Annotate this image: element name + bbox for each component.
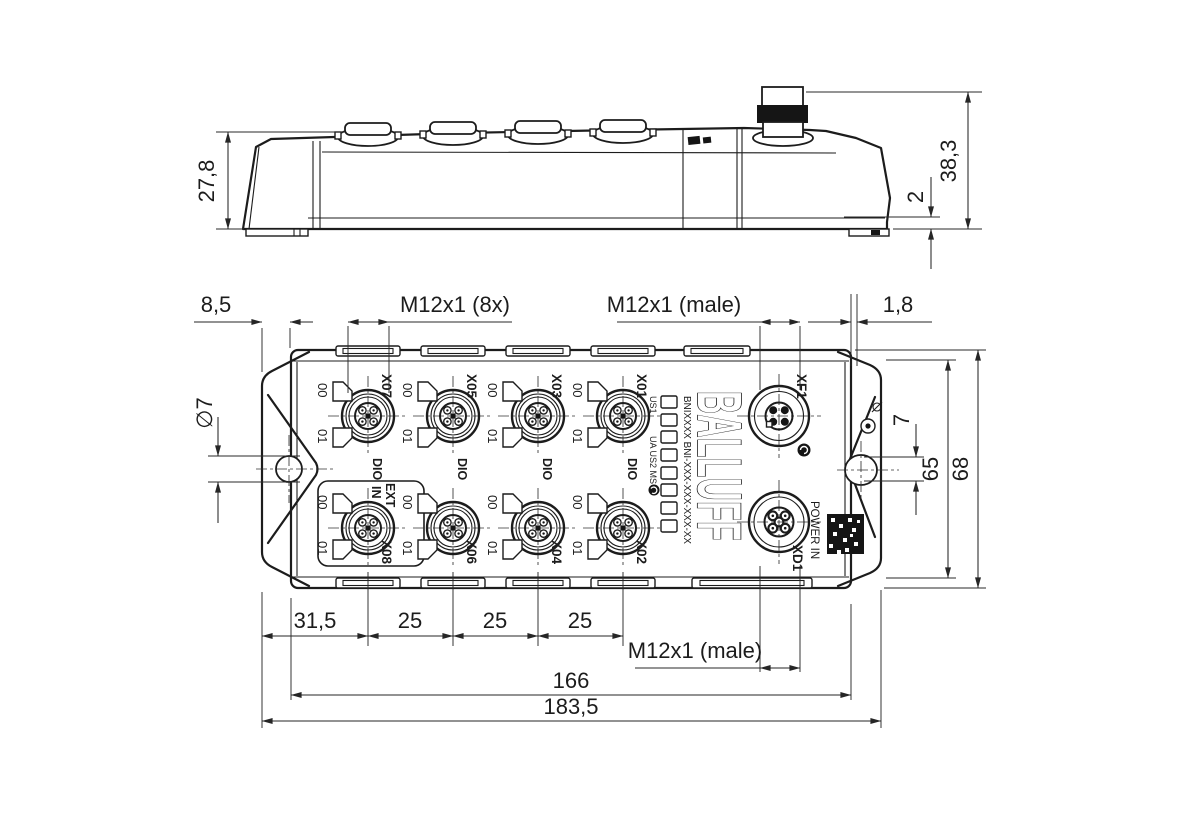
dim-ports-thread: M12x1 (8x) <box>348 292 512 393</box>
label-m12-male-top: M12x1 (male) <box>607 292 741 317</box>
port-label-x02: X02 <box>634 540 649 564</box>
led-00-label: 00 <box>400 495 415 509</box>
dim-text-166: 166 <box>553 668 590 693</box>
led-01-label: 01 <box>400 429 415 443</box>
led-01-label: 01 <box>485 429 500 443</box>
in-label: IN <box>369 486 383 499</box>
technical-drawing-page: 27,8 38,3 2 <box>0 0 1200 823</box>
housing-top-slots <box>336 346 750 356</box>
led-00-label: 00 <box>570 495 585 509</box>
led-us1-label: US1 <box>648 396 658 414</box>
dim-foot-height: 2 <box>844 177 940 269</box>
dim-tab-thickness: 1,8 <box>808 292 932 366</box>
dim-text-2: 2 <box>903 191 928 203</box>
port-label-x08: X08 <box>379 540 394 565</box>
led-01-label: 01 <box>485 541 500 555</box>
led-00-label: 00 <box>570 383 585 397</box>
dio-label: DIO <box>370 458 384 481</box>
label-m12-male-bottom: M12x1 (male) <box>628 638 762 663</box>
led-00-label: 00 <box>400 383 415 397</box>
port-label-x05: X05 <box>464 374 479 399</box>
led-01-label: 01 <box>570 541 585 555</box>
dim-height-right: 38,3 <box>806 92 982 229</box>
led-00-label: 00 <box>485 495 500 509</box>
port-label-x04: X04 <box>549 540 564 565</box>
side-view: 27,8 38,3 2 <box>194 87 982 269</box>
dim-text-7: 7 <box>889 414 914 426</box>
port-label-x07: X07 <box>379 374 394 398</box>
rotation-symbol <box>649 485 660 496</box>
led-00-label: 00 <box>315 383 330 397</box>
dimensional-drawing: 27,8 38,3 2 <box>0 0 1200 823</box>
power-in-label: POWER IN <box>808 501 820 559</box>
brand-logo: BALLUFF <box>684 391 753 541</box>
port-label-x03: X03 <box>549 374 564 399</box>
dim-text-25: 25 <box>483 608 507 633</box>
dim-text-8-5: 8,5 <box>201 292 232 317</box>
led-00-label: 00 <box>485 383 500 397</box>
port-label-xd1: XD1 <box>790 545 805 572</box>
dim-text-38-3: 38,3 <box>936 140 961 183</box>
dio-label: DIO <box>455 458 469 481</box>
dim-text-25: 25 <box>568 608 592 633</box>
dio-label: DIO <box>540 458 554 481</box>
dim-text-1-8: 1,8 <box>883 292 914 317</box>
dim-height-65: 65 <box>886 360 956 578</box>
led-01-label: 01 <box>315 541 330 555</box>
dio-label: DIO <box>625 458 639 481</box>
led-01-label: 01 <box>315 429 330 443</box>
dim-text-183-5: 183,5 <box>543 694 598 719</box>
port-label-xf1: XF1 <box>794 374 809 399</box>
datamatrix-code <box>827 514 864 554</box>
label-m12-8x: M12x1 (8x) <box>400 292 510 317</box>
dim-text-68: 68 <box>948 457 973 481</box>
side-power-connector <box>753 87 813 146</box>
led-ua-label: UA US2 MS <box>648 436 658 484</box>
top-view: 00 01 00 01 00 01 00 01 00 01 00 01 00 0… <box>192 292 986 728</box>
dim-text-31-5: 31,5 <box>294 608 337 633</box>
ext-label: EXT <box>383 483 397 508</box>
led-00-label: 00 <box>315 495 330 509</box>
coding-symbol <box>798 444 811 457</box>
port-label-x01: X01 <box>634 374 649 399</box>
port-label-x06: X06 <box>464 540 479 565</box>
side-vent-marks <box>688 135 712 145</box>
dim-text-27-8: 27,8 <box>194 160 219 203</box>
led-01-label: 01 <box>400 541 415 555</box>
dim-height-left: 27,8 <box>194 132 345 229</box>
dim-text-65: 65 <box>918 457 943 481</box>
dim-text-25: 25 <box>398 608 422 633</box>
dim-text-dia7: ∅7 <box>192 397 217 428</box>
housing-bottom-slots <box>336 578 812 588</box>
led-01-label: 01 <box>570 429 585 443</box>
